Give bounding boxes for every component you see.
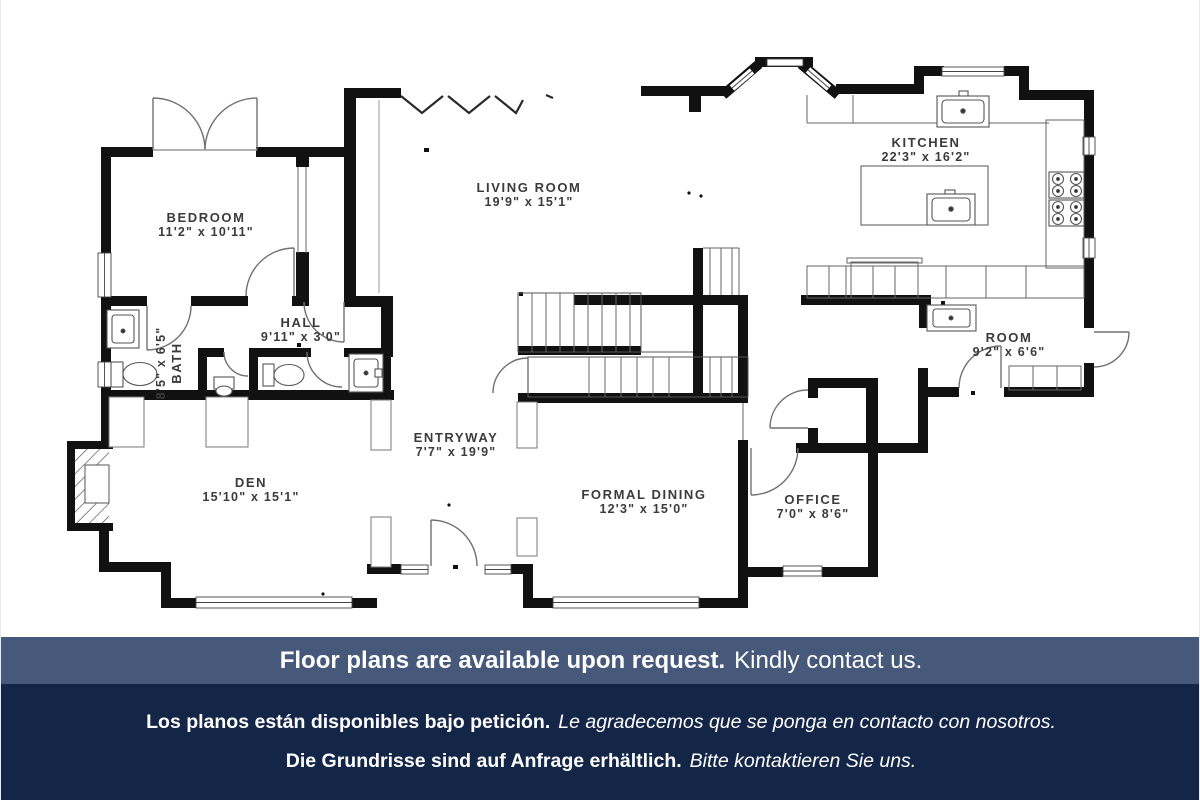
room-label-office: OFFICE 7'0" x 8'6" <box>777 492 850 522</box>
room-label-den: DEN 15'10" x 15'1" <box>202 475 299 505</box>
room-label-living: LIVING ROOM 19'9" x 15'1" <box>477 180 582 210</box>
room-label-bath: BATH 8'5" x 6'5" <box>154 327 184 400</box>
open-wall-zigzag <box>401 95 553 113</box>
footer-spanish-bold: Los planos están disponibles bajo petici… <box>146 711 550 734</box>
floorplan-drawing: BEDROOM 11'2" x 10'11" LIVING ROOM 19'9"… <box>1 0 1200 637</box>
room-label-formal-dining: FORMAL DINING 12'3" x 15'0" <box>581 487 706 517</box>
footer-spanish-line: Los planos están disponibles bajo petici… <box>146 711 1056 734</box>
room-label-hall: HALL 9'11" x 3'0" <box>261 315 341 345</box>
footer-spanish-italic: Le agradecemos que se ponga en contacto … <box>558 711 1056 734</box>
footer-english-bold: Floor plans are available upon request. <box>280 647 725 675</box>
room-label-kitchen: KITCHEN 22'3" x 16'2" <box>881 135 970 165</box>
room-label-entryway: ENTRYWAY 7'7" x 19'9" <box>414 430 499 460</box>
footer-german-bold: Die Grundrisse sind auf Anfrage erhältli… <box>286 750 682 773</box>
bay-windows <box>732 70 829 88</box>
footer-german-line: Die Grundrisse sind auf Anfrage erhältli… <box>286 750 916 773</box>
room-label-room: ROOM 9'2" x 6'6" <box>973 330 1046 360</box>
footer-banner-translations: Los planos están disponibles bajo petici… <box>1 684 1200 800</box>
floorplan-page: BEDROOM 11'2" x 10'11" LIVING ROOM 19'9"… <box>0 0 1200 800</box>
floorplan-svg <box>1 0 1200 637</box>
fireplace <box>75 449 109 523</box>
footer-german-italic: Bitte kontaktieren Sie uns. <box>690 750 917 773</box>
footer-english-regular: Kindly contact us. <box>734 647 922 675</box>
room-label-bedroom: BEDROOM 11'2" x 10'11" <box>158 210 254 240</box>
footer-banner-english: Floor plans are available upon request. … <box>1 637 1200 684</box>
